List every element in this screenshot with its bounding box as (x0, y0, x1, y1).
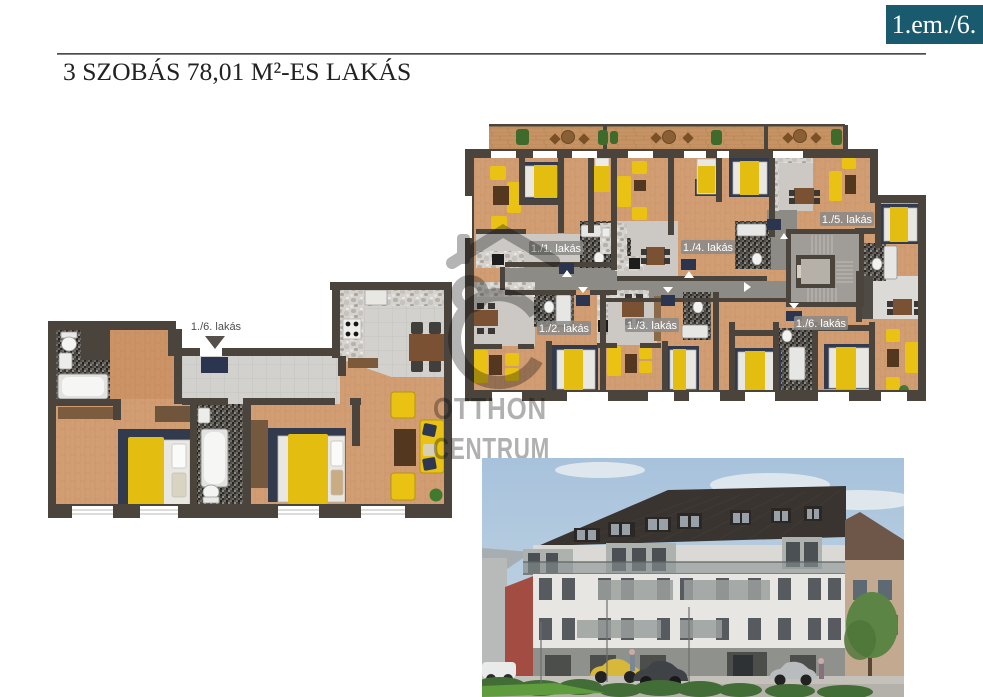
svg-text:1./2. lakás: 1./2. lakás (539, 323, 590, 335)
svg-text:1./6. lakás: 1./6. lakás (796, 318, 847, 330)
svg-text:1./4. lakás: 1./4. lakás (683, 242, 734, 254)
svg-text:1./3. lakás: 1./3. lakás (627, 320, 678, 332)
svg-text:1.em./6.: 1.em./6. (892, 10, 977, 39)
svg-text:1./6. lakás: 1./6. lakás (191, 321, 242, 333)
svg-text:3 SZOBÁS 78,01 M²-ES LAKÁS: 3 SZOBÁS 78,01 M²-ES LAKÁS (63, 57, 411, 86)
svg-text:OTTHON: OTTHON (433, 391, 547, 426)
svg-text:1./5. lakás: 1./5. lakás (822, 214, 873, 226)
